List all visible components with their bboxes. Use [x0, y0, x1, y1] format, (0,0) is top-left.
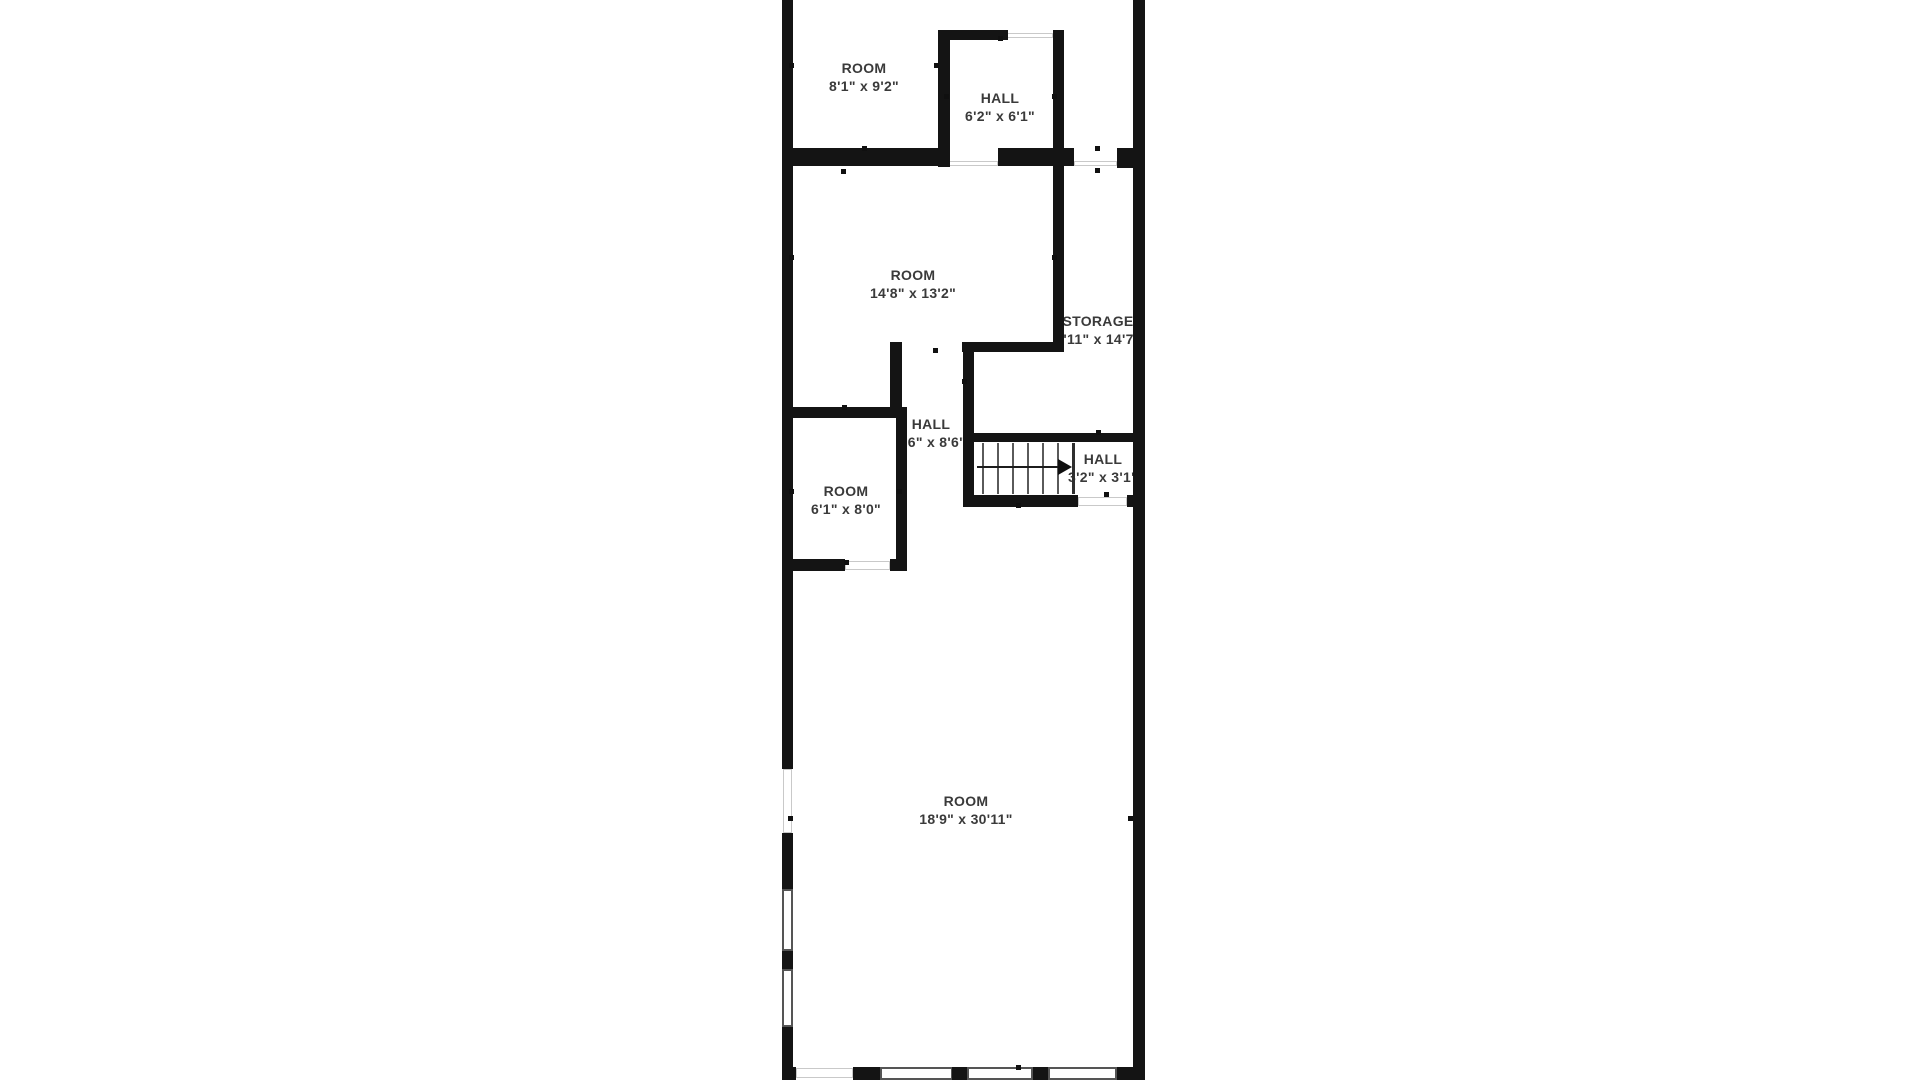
wall-marker-dot — [897, 489, 902, 494]
wall-segment — [782, 951, 793, 969]
room-label: ROOM6'1" x 8'0" — [811, 482, 881, 518]
room-name: ROOM — [870, 266, 956, 284]
wall-segment — [782, 833, 793, 889]
room-name: ROOM — [829, 59, 899, 77]
door-opening — [1074, 161, 1117, 166]
wall-marker-dot — [789, 489, 794, 494]
room-dimensions: 14'8" x 13'2" — [870, 284, 956, 302]
wall-marker-dot — [862, 146, 867, 151]
room-dimensions: 3'11" x 14'7" — [1055, 330, 1140, 348]
stair-tread-line — [1012, 443, 1014, 494]
wall-marker-dot — [789, 63, 794, 68]
wall-segment — [998, 148, 1074, 166]
wall-marker-dot — [998, 36, 1003, 41]
wall-segment — [965, 433, 1143, 442]
room-name: ROOM — [919, 792, 1012, 810]
window-symbol — [880, 1067, 953, 1080]
wall-segment — [1133, 0, 1145, 1080]
door-opening — [845, 561, 890, 570]
stair-tread-line — [1027, 443, 1029, 494]
wall-marker-dot — [933, 348, 938, 353]
stair-landing-divider — [1072, 443, 1075, 494]
stair-direction-arrow — [1058, 459, 1072, 475]
wall-segment — [1127, 495, 1143, 507]
wall-marker-dot — [841, 169, 846, 174]
wall-marker-dot — [788, 816, 793, 821]
room-label: ROOM8'1" x 9'2" — [829, 59, 899, 95]
stair-tread-line — [982, 443, 984, 494]
wall-marker-dot — [1095, 168, 1100, 173]
room-label: ROOM14'8" x 13'2" — [870, 266, 956, 302]
window-symbol — [1048, 1067, 1117, 1080]
wall-marker-dot — [1128, 816, 1133, 821]
window-symbol — [782, 889, 793, 951]
stair-direction-line — [977, 466, 1058, 468]
wall-marker-dot — [1096, 430, 1101, 435]
wall-marker-dot — [844, 560, 849, 565]
window-symbol — [967, 1067, 1033, 1080]
room-dimensions: 18'9" x 30'11" — [919, 810, 1012, 828]
wall-marker-dot — [1016, 503, 1021, 508]
wall-segment — [952, 1067, 967, 1080]
room-dimensions: 3'2" x 3'1" — [1068, 468, 1138, 486]
room-dimensions: 8'1" x 9'2" — [829, 77, 899, 95]
window-symbol — [782, 969, 793, 1027]
room-label: ROOM18'9" x 30'11" — [919, 792, 1012, 828]
wall-marker-dot — [1104, 492, 1109, 497]
room-dimensions: 6'2" x 6'1" — [965, 107, 1035, 125]
wall-marker-dot — [1095, 146, 1100, 151]
stair-tread-line — [997, 443, 999, 494]
door-opening — [796, 1068, 853, 1078]
wall-segment — [1117, 1067, 1145, 1080]
door-opening — [1078, 497, 1127, 506]
room-label: STORAGE3'11" x 14'7" — [1055, 312, 1140, 348]
wall-segment — [1033, 1067, 1048, 1080]
wall-segment — [853, 1067, 880, 1080]
wall-marker-dot — [944, 94, 949, 99]
wall-segment — [963, 342, 974, 507]
room-name: HALL — [1068, 450, 1138, 468]
wall-segment — [965, 495, 1078, 507]
wall-marker-dot — [962, 379, 967, 384]
room-label: HALL6'2" x 6'1" — [965, 89, 1035, 125]
wall-segment — [1117, 148, 1133, 168]
room-dimensions: 6'1" x 8'0" — [811, 500, 881, 518]
room-name: STORAGE — [1055, 312, 1140, 330]
door-opening — [783, 769, 792, 833]
wall-marker-dot — [842, 405, 847, 410]
room-name: HALL — [965, 89, 1035, 107]
wall-marker-dot — [934, 63, 939, 68]
wall-marker-dot — [789, 255, 794, 260]
room-label: HALL3'2" x 3'1" — [1068, 450, 1138, 486]
wall-marker-dot — [1052, 94, 1057, 99]
door-opening — [1007, 33, 1053, 38]
room-name: ROOM — [811, 482, 881, 500]
wall-segment — [962, 342, 1062, 352]
wall-segment — [782, 559, 845, 571]
wall-segment — [890, 559, 907, 571]
wall-segment — [782, 1067, 796, 1080]
wall-segment — [782, 0, 793, 769]
floor-plan: ROOM8'1" x 9'2"HALL6'2" x 6'1"ROOM14'8" … — [0, 0, 1920, 1080]
stair-tread-line — [1042, 443, 1044, 494]
door-opening — [943, 161, 998, 166]
wall-marker-dot — [1052, 255, 1057, 260]
wall-segment — [1053, 30, 1064, 352]
wall-marker-dot — [1016, 1065, 1021, 1070]
